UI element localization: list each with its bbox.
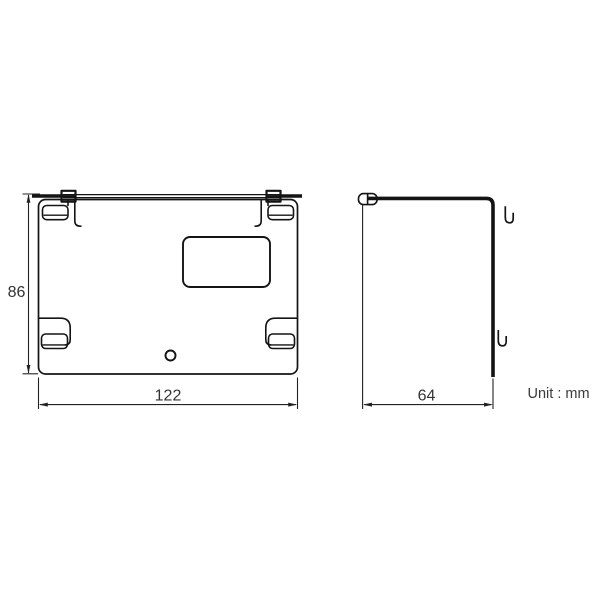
technical-drawing: 86 122 64 Unit <box>0 0 600 600</box>
dimension-height-value: 86 <box>8 284 26 301</box>
unit-label: Unit : mm <box>528 386 590 402</box>
dimension-width-value: 122 <box>155 388 182 405</box>
dimension-depth-value: 64 <box>418 388 436 405</box>
drawing-canvas: 86 122 64 Unit <box>0 0 600 600</box>
background <box>0 0 600 600</box>
